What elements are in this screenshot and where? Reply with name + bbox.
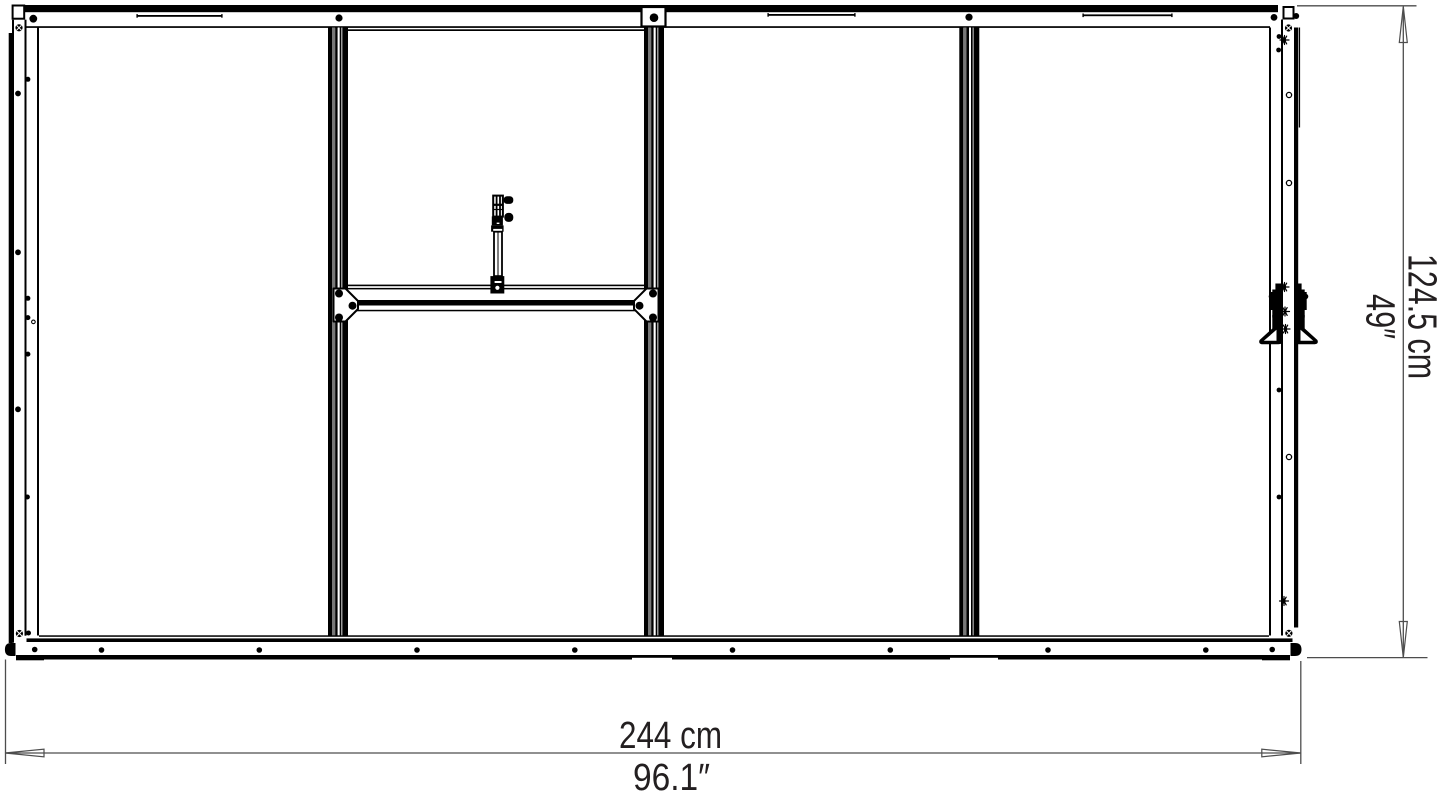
svg-text:244 cm: 244 cm: [619, 715, 722, 757]
svg-text:96.1″: 96.1″: [633, 757, 710, 792]
svg-text:49″: 49″: [1358, 294, 1404, 339]
svg-text:124.5 cm: 124.5 cm: [1400, 254, 1440, 379]
